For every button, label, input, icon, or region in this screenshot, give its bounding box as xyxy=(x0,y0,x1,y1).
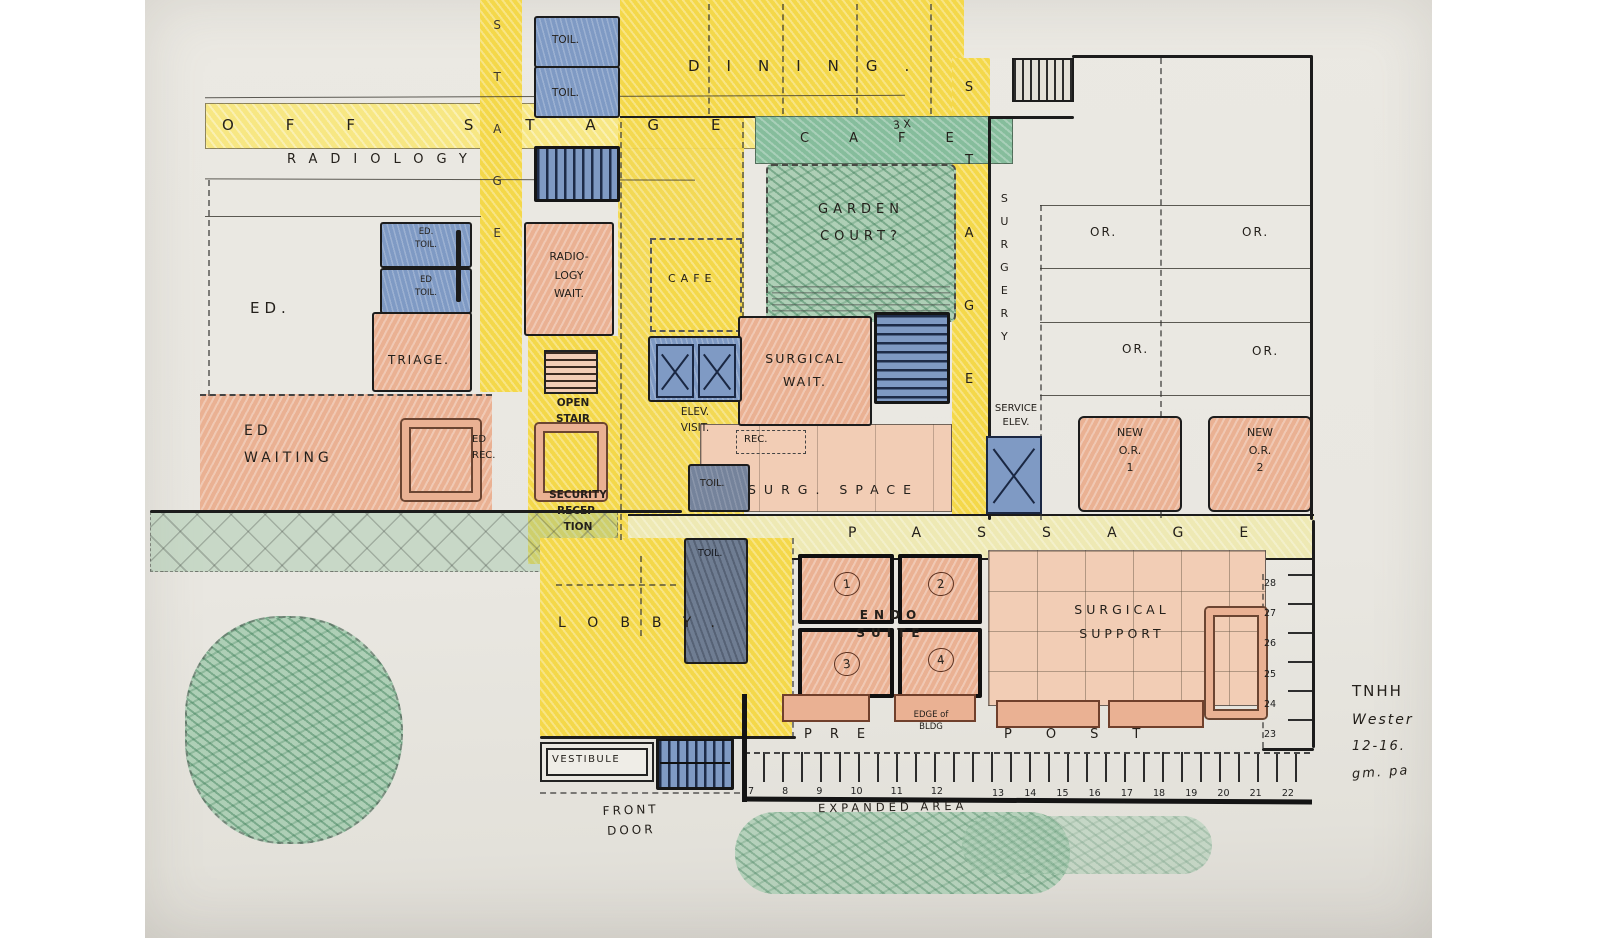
label-line: LOGY xyxy=(528,267,610,286)
endo-room-number: 1 xyxy=(834,572,860,596)
label-line: ED. xyxy=(394,226,458,239)
label-line: 2 xyxy=(1226,459,1294,477)
wall-line xyxy=(205,216,481,217)
label-line: OPEN xyxy=(538,396,608,412)
wall-line xyxy=(1262,748,1314,751)
label-line: SERVICE xyxy=(976,402,1056,416)
wall-line xyxy=(1040,205,1310,206)
label-line: 1 xyxy=(1096,459,1164,477)
ed-waiting-label: ED WAITING xyxy=(244,418,333,471)
pre-counter xyxy=(782,694,870,722)
landscape-band xyxy=(962,816,1212,874)
surgery-label: SURGERY xyxy=(996,192,1011,360)
note-line: Wester xyxy=(1352,706,1414,734)
elev-visit-label: ELEV. VISIT. xyxy=(650,405,740,437)
label-line: BLDG xyxy=(896,722,966,734)
label-line: SUPPORT xyxy=(1022,622,1222,646)
security-label: SECURITY RECEP- TION xyxy=(534,488,622,535)
label-line: SUITE xyxy=(836,624,946,642)
wall-line xyxy=(1072,55,1312,58)
corridor-edge xyxy=(620,122,622,540)
bay-number: 7 xyxy=(748,786,754,797)
label-line: NEW xyxy=(1226,424,1294,442)
stair xyxy=(534,146,620,202)
toilet-label: TOIL. xyxy=(552,33,579,47)
bay-number: 10 xyxy=(850,786,862,797)
label-line: RECEP- xyxy=(534,504,622,520)
label-line: ED xyxy=(472,432,495,448)
new-or-1-label: NEW O.R. 1 xyxy=(1096,424,1164,477)
bay-number: 12 xyxy=(931,786,943,797)
ed-reception-desk xyxy=(402,420,480,500)
label-line: TOIL. xyxy=(394,287,458,300)
bay-number: 18 xyxy=(1153,788,1165,799)
corridor-edge xyxy=(742,122,744,318)
label-line: WAIT. xyxy=(748,371,862,394)
label-line: COURT? xyxy=(796,223,926,250)
passage-label: PASSAGE xyxy=(848,524,1304,543)
wall-line xyxy=(540,736,796,739)
or-room-label: OR. xyxy=(1090,224,1117,240)
bay-number: 26 xyxy=(1264,638,1286,649)
room-number-circle: 2 xyxy=(927,571,955,598)
pre-label: PRE xyxy=(804,726,883,744)
wall-line xyxy=(1040,395,1310,396)
bay-number: 9 xyxy=(816,786,822,797)
bay-number: 17 xyxy=(1121,788,1133,799)
label-line: SURGICAL xyxy=(1022,598,1222,622)
bay-numbers-bottom: 13 14 15 16 17 18 19 20 21 22 xyxy=(992,788,1294,799)
bay-number: 16 xyxy=(1089,788,1101,799)
post-counter xyxy=(996,700,1100,728)
endo-room-number: 3 xyxy=(834,652,860,676)
label-line: ED xyxy=(394,274,458,287)
ed-rec-label: ED REC. xyxy=(472,432,495,464)
wall-line xyxy=(1040,322,1310,323)
title-note: TNHH Wester 12-16. gm. pa xyxy=(1352,676,1414,786)
wall-line xyxy=(988,116,1074,119)
garden-court-label: GARDEN COURT? xyxy=(796,196,926,251)
bay-number: 22 xyxy=(1282,788,1294,799)
patient-bays-right xyxy=(1288,574,1314,748)
surg-space-label: SURG. SPACE xyxy=(748,482,919,499)
note-line: 12-16. xyxy=(1352,734,1414,760)
toilet-label: TOIL. xyxy=(698,548,722,561)
stair-rail xyxy=(660,762,730,764)
open-stair-icon xyxy=(544,350,598,394)
label-line: SECURITY xyxy=(534,488,622,504)
or-room-label: OR. xyxy=(1122,341,1149,357)
lobby xyxy=(540,538,792,738)
bay-number: 27 xyxy=(1264,608,1286,619)
post-counter xyxy=(1108,700,1204,728)
note-line: gm. pa xyxy=(1351,758,1414,788)
radiology-wait-label: RADIO- LOGY WAIT. xyxy=(528,248,610,304)
edge-of-bldg-note: EDGE of BLDG xyxy=(896,710,966,734)
wall-line xyxy=(208,180,210,396)
label-line: ELEV. xyxy=(976,416,1056,430)
bay-number: 19 xyxy=(1185,788,1197,799)
bay-number: 15 xyxy=(1056,788,1068,799)
or-room-label: OR. xyxy=(1252,343,1279,359)
service-elev-label: SERVICE ELEV. xyxy=(976,402,1056,430)
vestibule-label: VESTIBULE xyxy=(552,753,620,767)
room-number-circle: 4 xyxy=(927,647,955,674)
label-line: ELEV. xyxy=(650,405,740,421)
trellis-lines xyxy=(772,286,950,312)
rec-label: REC. xyxy=(744,433,767,447)
label-line: TION xyxy=(534,520,622,536)
toilet-label: TOIL. xyxy=(700,478,724,491)
bay-number: 11 xyxy=(891,786,903,797)
new-or-2-label: NEW O.R. 2 xyxy=(1226,424,1294,477)
note-line: TNHH xyxy=(1352,676,1414,706)
surgical-wait-label: SURGICAL WAIT. xyxy=(748,348,862,393)
bay-number: 25 xyxy=(1264,669,1286,680)
label-line: VISIT. xyxy=(650,421,740,437)
cafe-room-label: CAFE xyxy=(668,272,716,287)
label-line: REC. xyxy=(472,448,495,464)
ed-label: ED. xyxy=(250,298,291,318)
stair xyxy=(874,312,950,404)
label-line: SURGICAL xyxy=(748,348,862,371)
stair xyxy=(656,738,734,790)
endo-suite-label: ENDO SUITE xyxy=(836,606,946,642)
or-room-label: OR. xyxy=(1242,224,1269,240)
ed-toilet-label: ED. TOIL. xyxy=(394,226,458,252)
bay-number: 14 xyxy=(1024,788,1036,799)
floor-plan-sketch: { "palette": { "paper": "#eae8e2", "ink"… xyxy=(0,0,1600,938)
label-line: DOOR xyxy=(588,819,675,842)
lobby-label: LOBBY. xyxy=(558,614,737,633)
label-line: RADIO- xyxy=(528,248,610,267)
patient-bays-bottom xyxy=(744,752,1310,782)
label-line: ENDO xyxy=(836,606,946,624)
surgical-support-label: SURGICAL SUPPORT xyxy=(1022,598,1222,646)
label-line: STAIR xyxy=(538,412,608,428)
wall-line xyxy=(1040,268,1310,269)
label-line: O.R. xyxy=(1226,442,1294,460)
label-line: NEW xyxy=(1096,424,1164,442)
expanded-area-label: EXPANDED AREA xyxy=(818,799,968,817)
endo-room-number: 2 xyxy=(928,572,954,596)
endo-room-number: 4 xyxy=(928,648,954,672)
open-stair-label: OPEN STAIR xyxy=(538,396,608,428)
triage-label: TRIAGE. xyxy=(388,352,450,368)
room-number-circle: 3 xyxy=(833,651,861,678)
stair xyxy=(1012,58,1074,102)
bay-number: 28 xyxy=(1264,578,1286,589)
toilet-label: TOIL. xyxy=(552,86,579,100)
label-line: EDGE of xyxy=(896,710,966,722)
label-line: GARDEN xyxy=(796,196,926,223)
radiology-dept-label: RADIOLOGY xyxy=(287,151,480,169)
bay-number: 23 xyxy=(1264,729,1286,740)
sidewalk-line xyxy=(540,792,740,794)
bay-numbers-left: 7 8 9 10 11 12 xyxy=(748,786,943,797)
dimension-note: 3 X xyxy=(892,117,911,134)
label-line: TOIL. xyxy=(394,239,458,252)
label-line: O.R. xyxy=(1096,442,1164,460)
sketch-line xyxy=(556,584,676,586)
elevator-icon xyxy=(656,344,694,398)
bay-number: 24 xyxy=(1264,699,1286,710)
post-label: POST xyxy=(1004,726,1174,744)
bay-numbers-right: 28 27 26 25 24 23 xyxy=(1264,578,1286,740)
dining-label: DINING. xyxy=(688,56,936,76)
bay-number: 21 xyxy=(1250,788,1262,799)
label-line: WAIT. xyxy=(528,285,610,304)
bay-number: 8 xyxy=(782,786,788,797)
wall-line xyxy=(1312,520,1315,748)
tree-planting xyxy=(185,616,403,844)
wall-line xyxy=(1310,55,1313,520)
bay-number: 13 xyxy=(992,788,1004,799)
elevator-icon xyxy=(698,344,736,398)
service-elevator-icon xyxy=(986,436,1042,514)
ed-toilet-label: ED TOIL. xyxy=(394,274,458,300)
label-line: ED xyxy=(244,418,333,445)
stage-left-label: STAGE xyxy=(489,18,505,308)
expansion-edge-line xyxy=(742,694,747,802)
front-door-label: FRONT DOOR xyxy=(587,799,674,843)
label-line: WAITING xyxy=(244,445,333,472)
room-number-circle: 1 xyxy=(833,571,861,598)
bay-number: 20 xyxy=(1217,788,1229,799)
